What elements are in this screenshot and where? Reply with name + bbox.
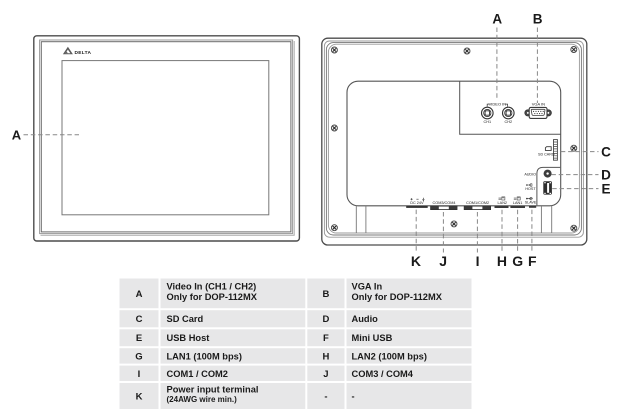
svg-text:LAN2 (100M bps): LAN2 (100M bps) xyxy=(352,351,427,361)
svg-text:-: - xyxy=(324,391,327,402)
svg-text:USB Host: USB Host xyxy=(167,333,210,343)
svg-text:(24AWG wire min.): (24AWG wire min.) xyxy=(167,395,238,404)
svg-text:DC 24V: DC 24V xyxy=(410,201,424,205)
svg-text:I: I xyxy=(476,253,480,269)
svg-text:COM1/COM2: COM1/COM2 xyxy=(466,201,489,205)
svg-text:E: E xyxy=(136,333,142,344)
svg-text:-: - xyxy=(352,391,355,401)
svg-text:SLAVE: SLAVE xyxy=(525,200,537,204)
svg-text:B: B xyxy=(322,289,329,300)
svg-text:E: E xyxy=(601,182,610,197)
svg-text:D: D xyxy=(601,168,611,183)
svg-text:H: H xyxy=(497,253,507,269)
svg-text:COM3 / COM4: COM3 / COM4 xyxy=(352,369,414,379)
svg-text:A: A xyxy=(12,127,22,142)
svg-text:G: G xyxy=(512,253,523,269)
svg-text:Mini USB: Mini USB xyxy=(352,333,393,343)
svg-text:F: F xyxy=(528,253,537,269)
svg-text:Video In (CH1 / CH2): Video In (CH1 / CH2) xyxy=(167,281,257,291)
svg-text:HOST: HOST xyxy=(525,187,536,191)
svg-text:K: K xyxy=(136,391,143,402)
svg-text:VIDEO IN: VIDEO IN xyxy=(489,101,507,106)
svg-text:CH2: CH2 xyxy=(504,120,512,124)
svg-text:J: J xyxy=(323,369,328,380)
svg-text:Only for DOP-112MX: Only for DOP-112MX xyxy=(352,292,443,302)
svg-text:J: J xyxy=(439,253,447,269)
svg-text:A: A xyxy=(492,12,502,27)
svg-text:SD Card: SD Card xyxy=(167,314,204,324)
svg-text:Audio: Audio xyxy=(352,314,379,324)
svg-text:Only for DOP-112MX: Only for DOP-112MX xyxy=(167,292,258,302)
svg-text:VGA IN: VGA IN xyxy=(532,101,545,106)
svg-text:C: C xyxy=(136,314,143,325)
svg-text:COM1 / COM2: COM1 / COM2 xyxy=(167,369,228,379)
svg-text:AUDIO: AUDIO xyxy=(524,172,536,176)
svg-text:DELTA: DELTA xyxy=(75,50,92,56)
svg-text:CH1: CH1 xyxy=(483,120,491,124)
svg-text:LAN1: LAN1 xyxy=(513,201,523,205)
svg-text:K: K xyxy=(411,253,421,269)
svg-text:B: B xyxy=(533,12,543,27)
svg-text:SD CARD: SD CARD xyxy=(538,153,555,157)
svg-text:LAN1 (100M bps): LAN1 (100M bps) xyxy=(167,351,242,361)
svg-text:F: F xyxy=(323,333,329,344)
svg-text:COM3/COM4: COM3/COM4 xyxy=(433,201,456,205)
svg-text:G: G xyxy=(135,351,142,362)
svg-text:C: C xyxy=(601,144,611,159)
svg-text:D: D xyxy=(322,314,329,325)
svg-text:LAN2: LAN2 xyxy=(498,201,508,205)
svg-text:I: I xyxy=(138,369,141,380)
svg-text:VGA In: VGA In xyxy=(352,281,383,291)
svg-text:H: H xyxy=(322,351,329,362)
svg-text:Power input terminal: Power input terminal xyxy=(167,385,259,395)
svg-text:A: A xyxy=(136,289,143,300)
